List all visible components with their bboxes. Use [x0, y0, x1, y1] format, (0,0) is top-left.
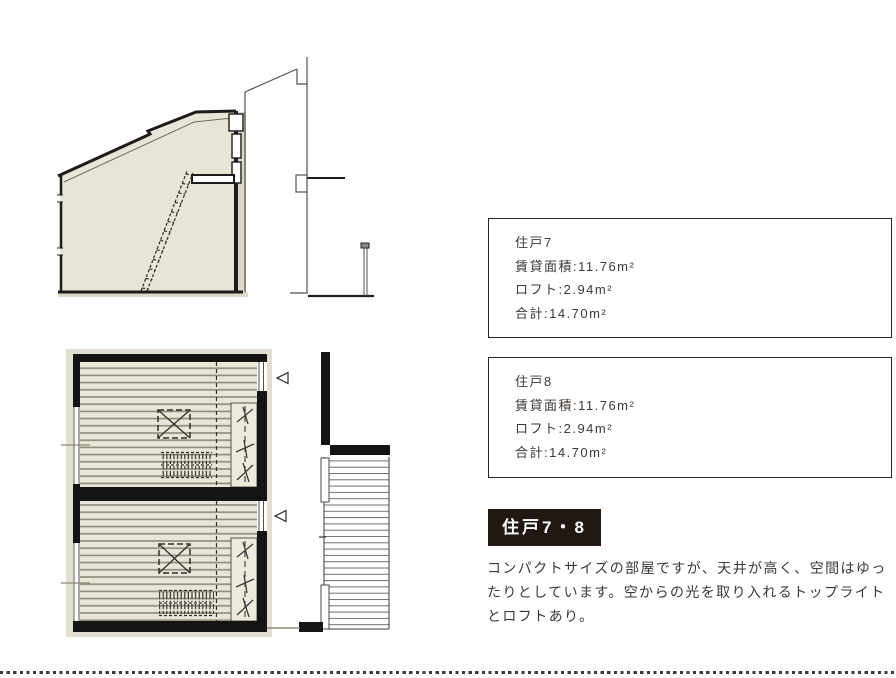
- unit8-rental-area: 賃貸面積:11.76m²: [515, 394, 891, 418]
- adjacent-structure-outline: [245, 57, 374, 296]
- unit8-info-box: 住戸8 賃貸面積:11.76m² ロフト:2.94m² 合計:14.70m²: [488, 357, 892, 478]
- unit-description: コンパクトサイズの部屋ですが、天井が高く、空間はゆっ たりとしています。空からの…: [487, 556, 896, 628]
- unit8-total-area: 合計:14.70m²: [515, 441, 891, 465]
- description-line: とロフトあり。: [487, 604, 896, 628]
- closet-door: [231, 403, 257, 487]
- section-heading: 住戸7・8: [488, 509, 601, 546]
- unit8-title: 住戸8: [515, 370, 891, 394]
- closet-door: [231, 538, 257, 621]
- description-line: コンパクトサイズの部屋ですが、天井が高く、空間はゆっ: [487, 556, 896, 580]
- architectural-drawings: [0, 0, 420, 660]
- unit7-title: 住戸7: [515, 231, 891, 255]
- shared-deck: [267, 352, 390, 632]
- entrance-door: [257, 501, 267, 531]
- loft-floor: [192, 175, 234, 183]
- entrance-direction-triangle-icon: [275, 511, 286, 522]
- floor-plan-drawing: [61, 349, 390, 637]
- unit8-loft-area: ロフト:2.94m²: [515, 417, 891, 441]
- unit7-loft-area: ロフト:2.94m²: [515, 278, 891, 302]
- cross-section-drawing: [57, 57, 374, 297]
- dotted-separator: [0, 671, 896, 674]
- section-left-wall: [57, 174, 63, 292]
- entrance-door: [257, 362, 267, 391]
- entrance-direction-triangle-icon: [277, 373, 288, 384]
- unit7-info-box: 住戸7 賃貸面積:11.76m² ロフト:2.94m² 合計:14.70m²: [488, 218, 892, 338]
- unit7-rental-area: 賃貸面積:11.76m²: [515, 255, 891, 279]
- unit7-total-area: 合計:14.70m²: [515, 302, 891, 326]
- description-line: たりとしています。空からの光を取り入れるトップライト: [487, 580, 896, 604]
- page: 住戸7 賃貸面積:11.76m² ロフト:2.94m² 合計:14.70m² 住…: [0, 0, 896, 678]
